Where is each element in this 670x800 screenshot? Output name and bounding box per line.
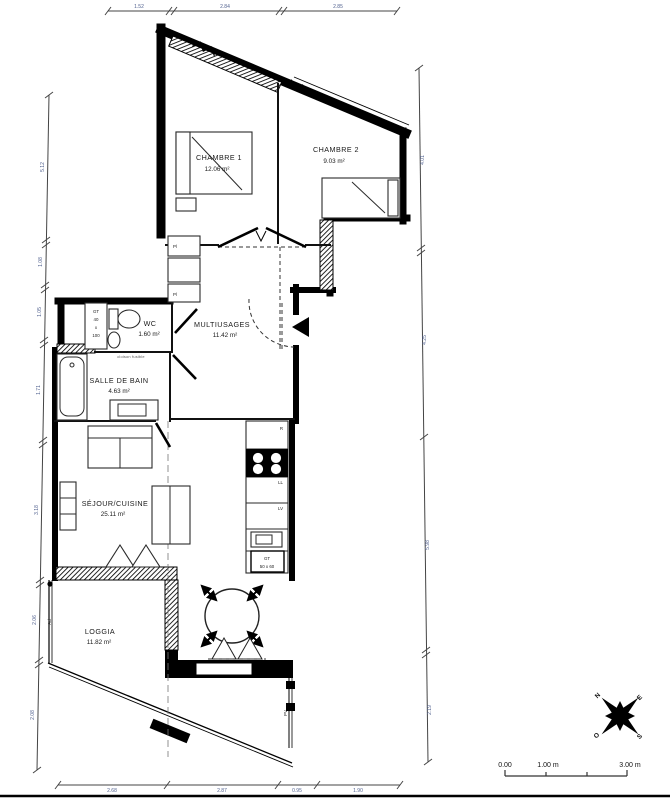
dim-bottom-2: 2.87: [217, 788, 227, 794]
partition-note-label: cloison fusible: [117, 354, 144, 359]
room-label-loggia: LOGGIA: [85, 627, 115, 636]
dim-left-6: 2.06: [32, 615, 38, 625]
loggia-post-dot: [47, 581, 52, 586]
compass-o: O: [593, 732, 602, 741]
chair-arrow-sw: [202, 632, 216, 646]
pv-label: PV: [283, 710, 288, 716]
room-label-chambre1: CHAMBRE 1: [196, 153, 242, 162]
sofa-icon: [88, 426, 152, 468]
room-label-chambre2: CHAMBRE 2: [313, 145, 359, 154]
scale-label-1: 1.00 m: [537, 762, 559, 769]
dim-right-1: 4.01: [420, 155, 426, 165]
dim-right-4: 2.19: [427, 705, 433, 715]
plant-icon-1: [106, 545, 134, 567]
loggia-right-block-2: [286, 703, 295, 711]
compass-rose: N E S O: [593, 692, 645, 741]
dishwasher-label: LV: [278, 506, 283, 511]
cooktop-icon: [246, 449, 288, 477]
loggia-railing-2: [49, 667, 293, 767]
wall-hatch-nook: [320, 220, 333, 290]
room-label-sdb: SALLE DE BAIN: [90, 376, 149, 385]
entrance-arrow-icon: [292, 317, 309, 337]
scale-label-3: 3.00 m: [619, 762, 641, 769]
chair-arrow-ne: [248, 586, 262, 600]
kitchen-strip: R LL LV GT 50 x 60: [246, 421, 288, 573]
nightstand-icon: [176, 198, 196, 211]
room-area-multiusages: 11.42 m²: [213, 332, 237, 339]
closet-label-2: Pl: [173, 292, 177, 297]
room-area-chambre1: 12.06 m²: [205, 166, 230, 173]
wall-top-diagonal: [161, 30, 406, 133]
floorplan-svg: Pl Pl GT 40 x 100: [0, 0, 670, 800]
dim-bottom-3: 0.95: [292, 788, 302, 794]
dim-left-3: 1.05: [37, 307, 43, 317]
washing-machine-label: LL: [278, 480, 283, 485]
dim-line-right: [419, 68, 428, 762]
dim-bottom-1: 2.68: [107, 788, 117, 794]
shaft-gt-label-4: 100: [92, 333, 100, 338]
chair-arrow-nw: [202, 586, 216, 600]
kitchen-gt-label-2: 50 x 60: [260, 564, 275, 569]
dining-set: [202, 586, 266, 659]
window-glazing-line-2: [294, 77, 409, 125]
furniture: Pl Pl GT 40 x 100: [57, 132, 400, 675]
room-area-sdb: 4.63 m²: [108, 388, 129, 395]
room-label-wc: WC: [144, 319, 157, 328]
dim-left-4: 1.71: [36, 385, 42, 395]
scale-bar: 0.00 1.00 m 3.00 m: [498, 762, 641, 776]
bay-window-sejour: [56, 567, 177, 580]
dim-left-5: 3.18: [34, 505, 40, 515]
armchair-icon: [152, 486, 190, 544]
toilet-icon: [108, 309, 140, 348]
sdb-door-leaf: [173, 355, 196, 379]
room-area-wc: 1.60 m²: [138, 331, 159, 338]
plant-icon-2: [132, 545, 160, 567]
scale-bar-ticks: [505, 770, 627, 776]
bed-double-icon: [176, 132, 252, 194]
room-label-sejour: SÉJOUR/CUISINE: [82, 499, 149, 508]
dim-left-7: 2.08: [30, 710, 36, 720]
window-band-top: [169, 36, 282, 92]
dim-left-1: 5.12: [40, 162, 46, 172]
shaft-gt-wc: GT 40 x 100: [85, 303, 107, 349]
bathroom-sink-icon: [110, 400, 158, 420]
room-area-loggia: 11.82 m²: [87, 639, 111, 646]
double-door-leaf-right: [266, 228, 306, 247]
kitchen-sink-icon: [251, 532, 282, 547]
bench-icon: [196, 663, 252, 675]
dim-right-2: 4.25: [422, 335, 428, 345]
closet-icon-2: [168, 258, 200, 282]
loggia-right-block-1: [286, 681, 295, 689]
shelf-icon: [60, 482, 76, 530]
closet-label-1: Pl: [173, 244, 177, 249]
shaft-gt-label-1: GT: [93, 309, 99, 314]
kitchen-gt-label-1: GT: [264, 556, 270, 561]
compass-n: N: [594, 692, 602, 700]
closets: Pl Pl: [168, 236, 200, 302]
dim-line-left: [37, 95, 49, 770]
bed-single-icon: [322, 178, 400, 218]
scale-label-0: 0.00: [498, 762, 512, 769]
room-label-multiusages: MULTIUSAGES: [194, 320, 250, 329]
room-area-chambre2: 9.03 m²: [323, 158, 344, 165]
double-door-leaf-left: [218, 228, 258, 247]
bay-window-loggia: [165, 580, 178, 650]
dim-bottom-4: 1.90: [353, 788, 363, 794]
shaft-gt-label-2: 40: [94, 317, 99, 322]
dim-right-3: 5.98: [425, 540, 431, 550]
compass-e: E: [636, 693, 644, 701]
double-door-vmark: [256, 231, 266, 241]
bathtub-icon: [57, 354, 87, 420]
dim-top-3: 2.85: [333, 4, 343, 10]
dim-top-2: 2.84: [220, 4, 230, 10]
ad-label: Ad: [47, 619, 52, 625]
compass-s: S: [636, 732, 644, 740]
floorplan-page: Pl Pl GT 40 x 100: [0, 0, 670, 800]
fridge-label: R: [280, 426, 283, 431]
shaft-gt-kitchen: GT 50 x 60: [251, 551, 284, 572]
dim-left-2: 1.08: [38, 257, 44, 267]
entrance-door-arc: [249, 299, 294, 347]
room-area-sejour: 25.11 m²: [101, 511, 125, 518]
plants-icons: [106, 545, 160, 567]
dim-top-1: 1.52: [134, 4, 144, 10]
